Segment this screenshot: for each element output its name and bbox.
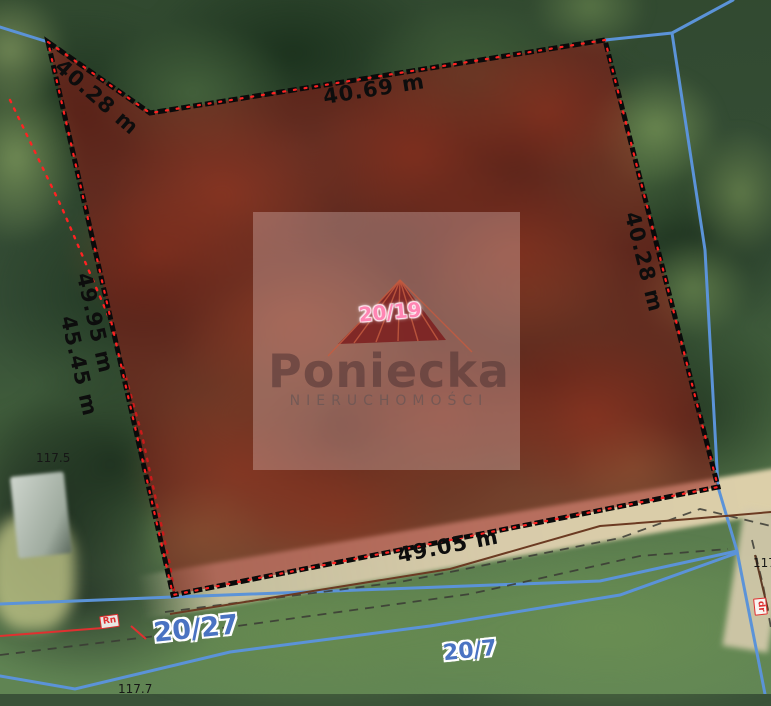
watermark-subtitle-text: NIERUCHOMOŚCI xyxy=(290,393,489,409)
boundary-line-bottom-upper xyxy=(0,551,737,604)
road-edge-dashed-lower xyxy=(0,549,728,655)
elevation-117-5: 117.5 xyxy=(36,451,70,465)
survey-red-line xyxy=(0,628,103,636)
satellite-parcel-map: { "map": { "region_labels": { "parcel_ma… xyxy=(0,0,771,694)
watermark-brand-text: Poniecka xyxy=(268,344,510,398)
survey-red-line-end xyxy=(131,626,146,639)
boundary-line-top-right xyxy=(605,0,733,40)
land-use-label-rn: Rn xyxy=(99,614,120,630)
elevation-right-partial: 117 xyxy=(753,556,771,570)
boundary-line-top-left xyxy=(0,27,48,42)
land-use-label-dr: dr xyxy=(753,597,768,615)
boundary-line-bottom-right xyxy=(718,487,765,694)
